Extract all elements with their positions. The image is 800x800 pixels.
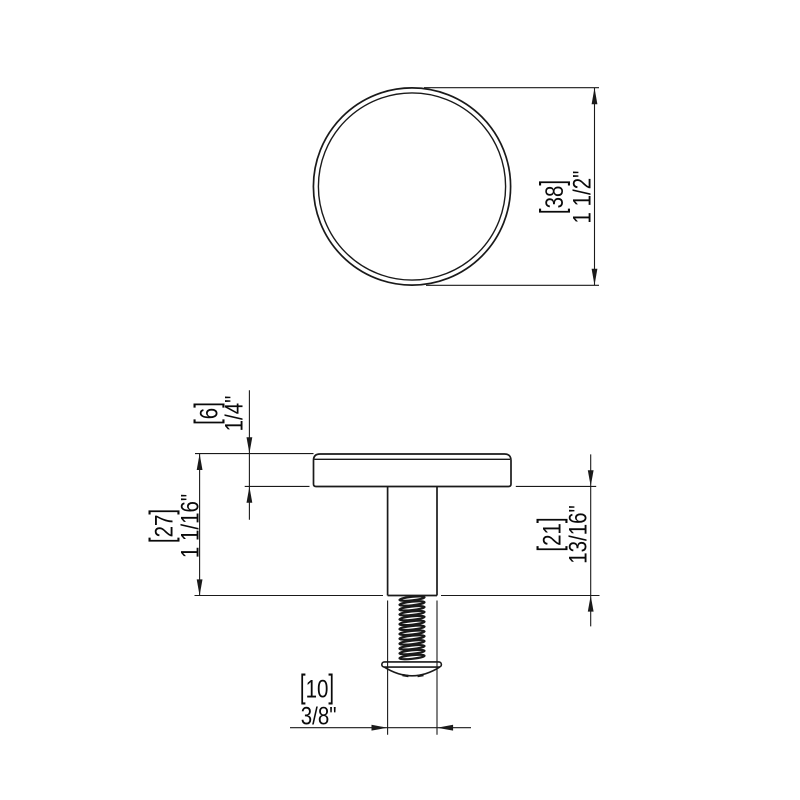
svg-text:1 1/16": 1 1/16": [176, 494, 204, 558]
svg-text:[: [: [530, 546, 567, 552]
svg-text:]: ]: [142, 509, 179, 515]
svg-text:27: 27: [150, 515, 178, 538]
svg-text:]: ]: [328, 667, 334, 704]
svg-text:38: 38: [540, 186, 568, 209]
svg-text:[: [: [300, 667, 306, 704]
svg-text:]: ]: [530, 517, 567, 523]
svg-text:13/16": 13/16": [564, 505, 592, 564]
svg-text:[: [: [142, 537, 179, 543]
svg-text:3/8": 3/8": [301, 702, 337, 730]
svg-text:10: 10: [306, 675, 329, 703]
svg-text:]: ]: [533, 180, 570, 186]
svg-text:1 1/2": 1 1/2": [568, 171, 596, 224]
svg-text:1/4": 1/4": [220, 396, 248, 432]
svg-text:[: [: [533, 208, 570, 214]
svg-text:21: 21: [538, 523, 566, 546]
